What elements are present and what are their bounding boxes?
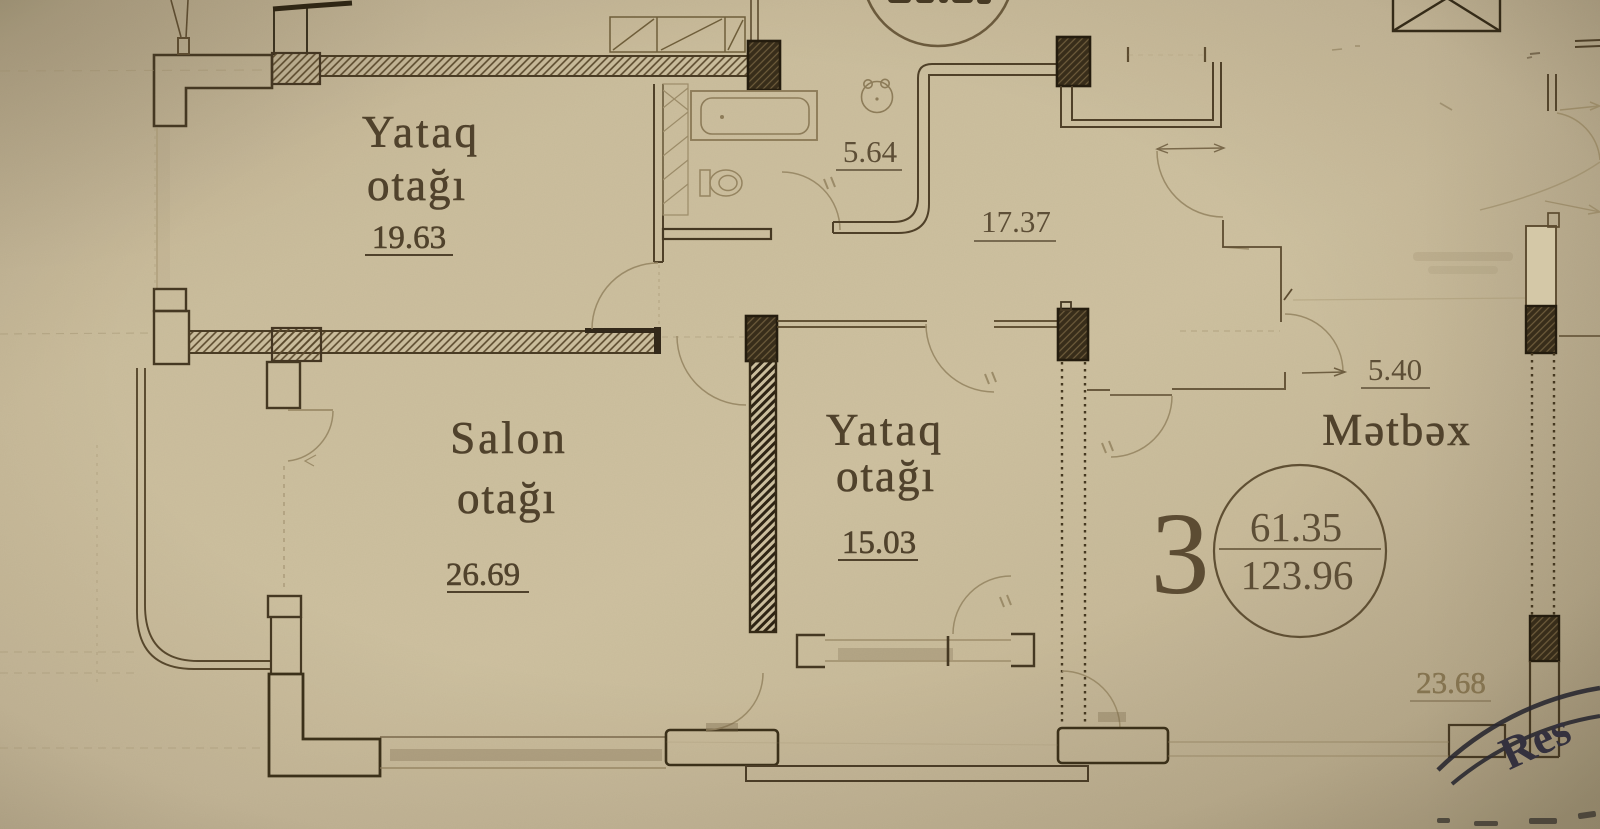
svg-text:23.68: 23.68 (1416, 665, 1486, 700)
svg-text:otağı: otağı (457, 473, 557, 523)
svg-text:Yataq: Yataq (362, 107, 480, 157)
svg-text:15.03: 15.03 (842, 525, 916, 561)
svg-text:123.96: 123.96 (1241, 552, 1354, 598)
svg-text:5.40: 5.40 (1368, 352, 1422, 387)
svg-text:Mətbəx: Mətbəx (1322, 405, 1471, 455)
svg-text:26.69: 26.69 (446, 557, 520, 593)
svg-text:19.63: 19.63 (372, 220, 446, 256)
svg-text:61.35: 61.35 (1250, 504, 1342, 550)
svg-text:Yataq: Yataq (826, 405, 944, 455)
svg-text:Salon: Salon (450, 413, 568, 463)
svg-text:5.64: 5.64 (843, 134, 898, 169)
svg-text:17.37: 17.37 (981, 204, 1051, 239)
svg-text:3: 3 (1151, 488, 1210, 619)
svg-text:otağı: otağı (367, 160, 467, 210)
svg-text:otağı: otağı (836, 451, 936, 501)
